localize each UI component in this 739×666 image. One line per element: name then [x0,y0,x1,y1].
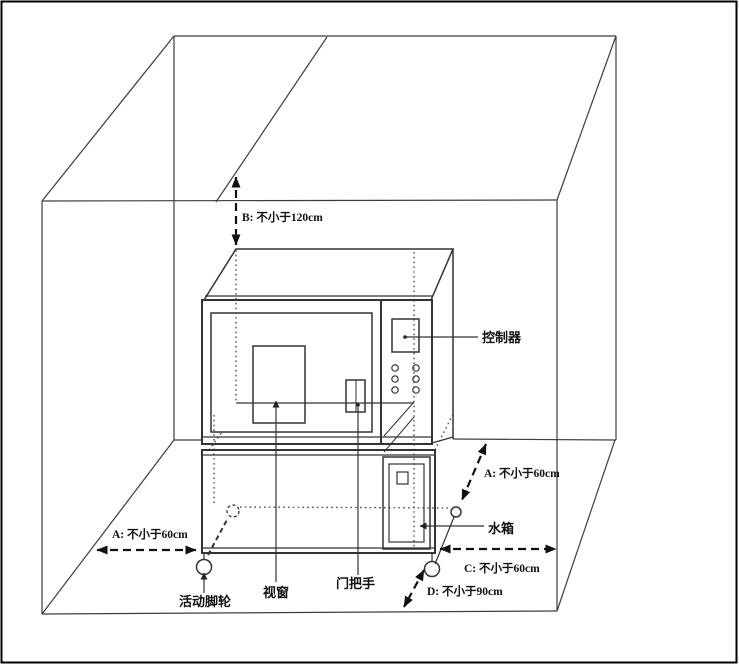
caster-back-left-hidden [227,505,239,517]
chamber-door [211,313,372,432]
water-tank-latch [397,472,408,484]
diagram-canvas: B: 不小于120cm A: 不小于60cm A: 不小于60cm C: 不小于… [0,0,739,666]
part-label-caster: 活动脚轮 [179,594,231,609]
part-label-door-handle: 门把手 [336,576,375,591]
chamber-upper [202,249,453,452]
caster-front-right [425,562,440,577]
control-button [392,376,398,382]
dim-label-d: D: 不小于90cm [427,584,503,598]
door-handle-leader-dot [356,403,360,407]
chamber-top-face [204,249,453,300]
ceiling-left-edge [42,36,174,201]
dim-label-b: B: 不小于120cm [242,210,323,224]
floor-left-edge [42,440,174,614]
control-button [413,376,419,382]
clearance-arrows [97,177,556,607]
room-wireframe [42,36,616,614]
floor-right-edge [557,440,615,611]
base-hidden-bottom-back-edge [240,507,449,508]
ceiling-reference-line [216,37,327,202]
caster-back-right [451,507,461,517]
floor-front-edge [42,611,557,614]
base-bottom-left-depth-edge [208,518,228,555]
base-front-face [202,450,435,553]
control-buttons [392,365,419,393]
water-tank-door-inner [389,464,424,542]
chamber-hidden-bottom-right-edge [384,402,414,436]
control-button [392,365,398,371]
dim-label-a-left: A: 不小于60cm [112,527,188,541]
controller-leader-dot [403,335,407,339]
ceiling-right-edge [557,36,616,200]
figure-border [2,2,737,663]
chamber-side-bottom-edge [432,437,453,443]
base-bottom-right-depth-edge [435,517,454,564]
wall-floor-seam-right [453,439,616,440]
hidden-edges [209,250,453,548]
clearance-arrow-a-right [462,444,486,500]
base-hidden-top-rear-edge [435,414,453,450]
leader-lines [204,337,484,593]
part-label-controller: 控制器 [482,330,522,345]
base-hidden-top-right-edge [384,417,414,452]
base-cabinet [197,450,462,577]
dim-label-a-right: A: 不小于60cm [484,466,560,480]
clearance-arrow-d [404,570,424,607]
water-tank-door [383,457,430,549]
viewport-window [253,346,305,423]
caster-front-left [197,560,212,575]
ceiling-front-edge [42,200,557,201]
control-button [392,387,398,393]
part-label-viewport: 视窗 [263,585,289,600]
base-hidden-top-left-edge [209,432,222,450]
chamber-front-face [202,300,432,444]
dim-label-c: C: 不小于60cm [464,561,540,575]
part-label-water-tank: 水箱 [488,521,514,536]
